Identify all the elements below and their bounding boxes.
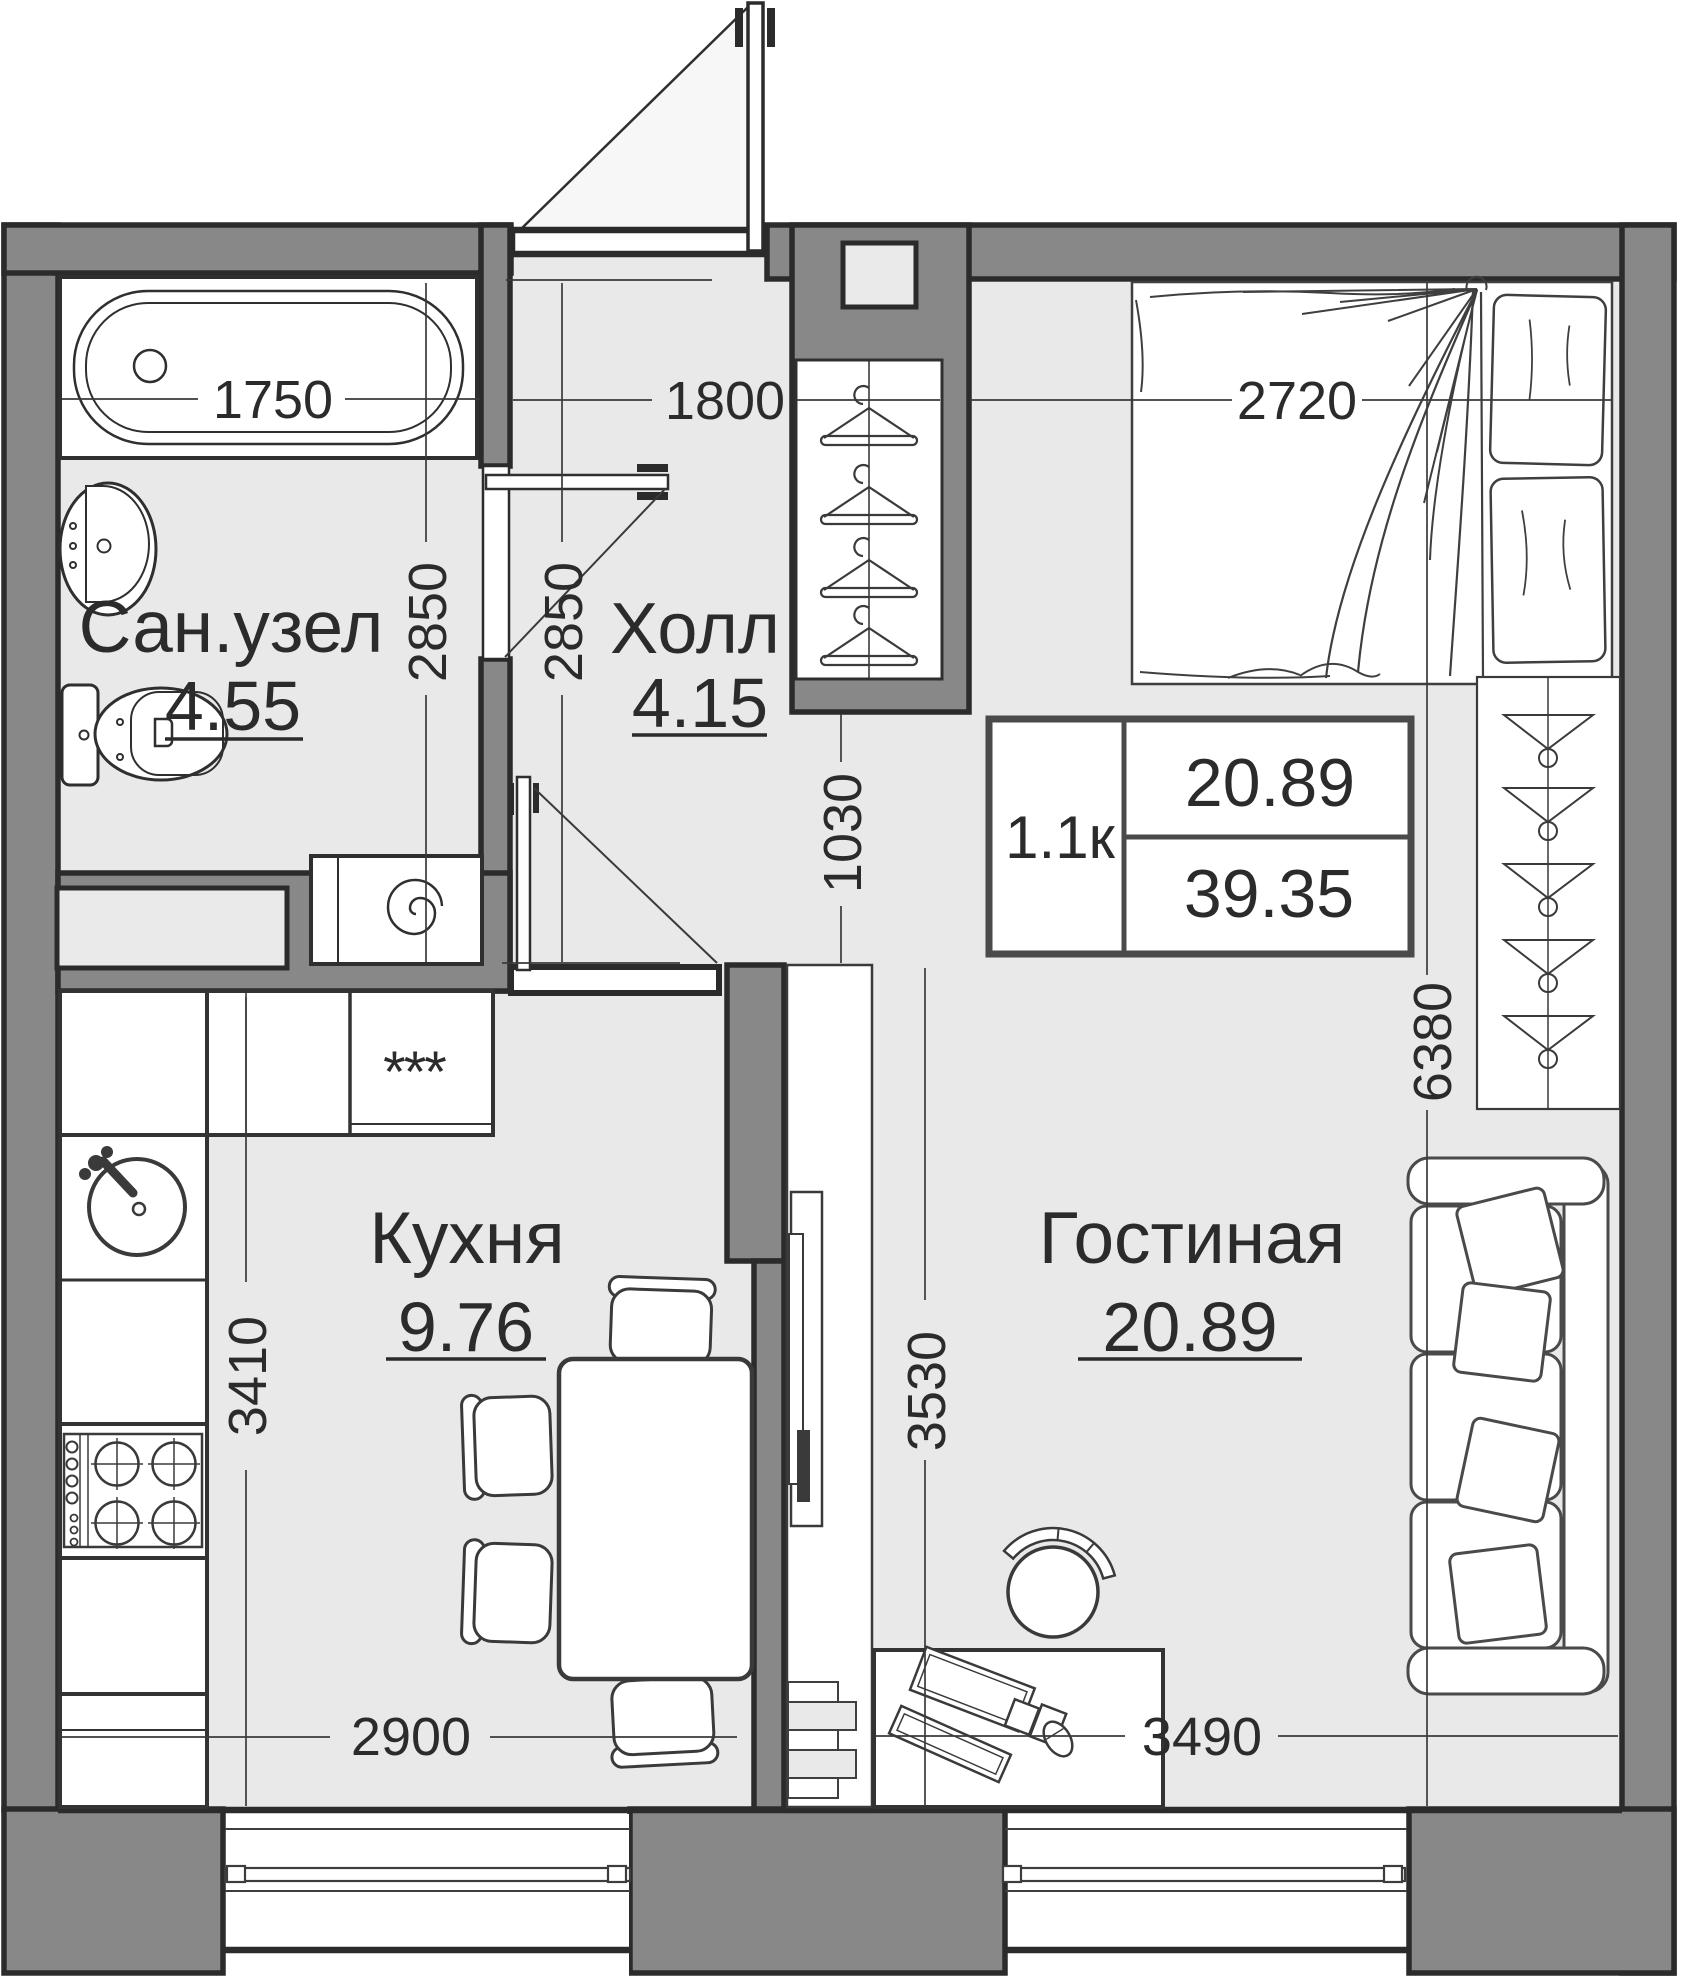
svg-text:4.55: 4.55 bbox=[165, 667, 301, 745]
svg-text:Кухня: Кухня bbox=[369, 1198, 564, 1279]
svg-text:9.76: 9.76 bbox=[398, 1288, 534, 1366]
svg-text:20.89: 20.89 bbox=[1102, 1288, 1277, 1366]
svg-text:2850: 2850 bbox=[534, 562, 594, 682]
svg-text:Гостиная: Гостиная bbox=[1039, 1198, 1345, 1279]
svg-text:2900: 2900 bbox=[351, 1707, 471, 1767]
svg-text:6380: 6380 bbox=[1403, 982, 1463, 1102]
svg-text:Сан.узел: Сан.узел bbox=[79, 587, 384, 668]
svg-text:1030: 1030 bbox=[813, 773, 873, 893]
svg-text:2720: 2720 bbox=[1237, 371, 1357, 431]
svg-text:4.15: 4.15 bbox=[632, 664, 768, 742]
svg-text:3490: 3490 bbox=[1142, 1707, 1262, 1767]
svg-text:***: *** bbox=[383, 1040, 446, 1105]
svg-text:1800: 1800 bbox=[665, 371, 785, 431]
svg-text:3410: 3410 bbox=[218, 1316, 278, 1436]
svg-text:Холл: Холл bbox=[610, 589, 780, 669]
svg-text:39.35: 39.35 bbox=[1184, 856, 1354, 932]
svg-text:1.1к: 1.1к bbox=[1005, 804, 1115, 871]
svg-text:1750: 1750 bbox=[213, 370, 333, 430]
svg-text:20.89: 20.89 bbox=[1185, 745, 1355, 821]
svg-text:3530: 3530 bbox=[897, 1331, 957, 1451]
svg-text:2850: 2850 bbox=[398, 562, 458, 682]
